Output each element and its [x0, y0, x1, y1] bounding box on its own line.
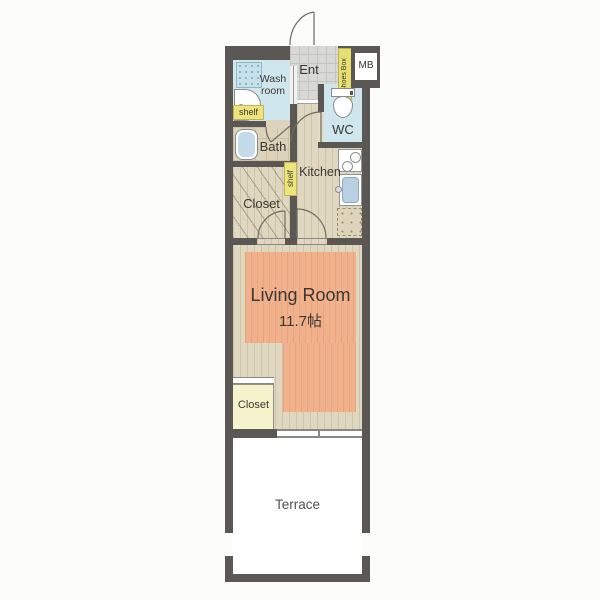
- washroom-shelf-label: shelf: [233, 105, 264, 120]
- terrace-wall-left: [225, 438, 233, 582]
- terrace-wall-right: [362, 438, 370, 582]
- living-room-area: 11.7帖: [245, 314, 356, 331]
- closet-upper-label: Closet: [233, 197, 290, 211]
- refrigerator-space: [337, 208, 362, 236]
- living-room-label: Living Room: [245, 286, 356, 306]
- terrace-label: Terrace: [233, 498, 362, 513]
- terrace-wall-opening-left: [225, 533, 233, 556]
- terrace-window: [277, 429, 362, 438]
- washroom-label: Wash room: [256, 74, 290, 97]
- closet-lower-label: Closet: [233, 399, 274, 411]
- closet-door-opening: [257, 238, 285, 245]
- closet-lower-sliding-door: [233, 377, 274, 384]
- terrace-wall-bottom: [225, 574, 370, 582]
- bath-door-opening: [266, 120, 290, 128]
- wc-wall-bottom: [318, 142, 362, 148]
- terrace-wall-opening-right: [362, 533, 370, 556]
- wc-door-opening: [318, 112, 324, 142]
- kitchen-door-opening: [297, 238, 327, 245]
- living-carpet: [283, 343, 356, 412]
- wc-label: WC: [324, 123, 362, 137]
- kitchen-label: Kitchen: [296, 166, 344, 180]
- floorplan-canvas: Shoes Box MB shelf Wash room Bath Closet…: [0, 0, 600, 600]
- bath-label: Bath: [256, 140, 290, 154]
- faucet-icon: [335, 186, 342, 193]
- meter-box-label: MB: [355, 60, 377, 71]
- washroom-sliding-door: [290, 66, 297, 104]
- bathtub-icon: [235, 129, 258, 160]
